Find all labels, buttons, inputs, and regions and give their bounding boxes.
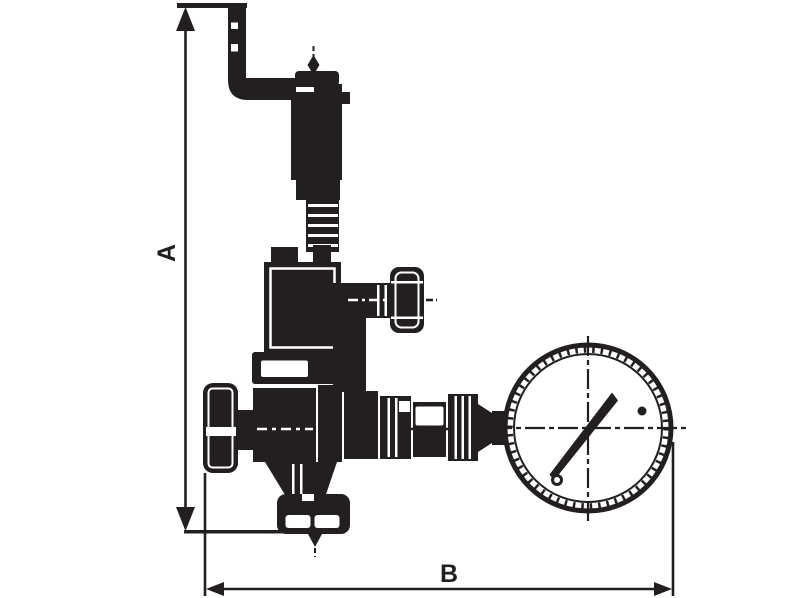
- sensing-pipe-elbow: [228, 3, 298, 100]
- outlet-fittings: [318, 385, 508, 462]
- flange-groove: [388, 398, 391, 457]
- t-handle-bar-line: [391, 281, 423, 284]
- adjusting-screw: [295, 46, 339, 86]
- spring-tube-upper: [291, 84, 342, 180]
- dimension-b-label: B: [440, 560, 458, 588]
- spring-tube: [291, 84, 350, 252]
- union-groove: [469, 396, 472, 459]
- spring-tube-mid: [296, 180, 340, 200]
- pipe-fitting-notch: [231, 23, 238, 30]
- union-window: [286, 515, 311, 528]
- pressure-gauge: [492, 336, 688, 521]
- union-window: [315, 515, 340, 528]
- bonnet-flange-window: [261, 361, 308, 378]
- flange-notch: [399, 401, 410, 412]
- thread-stripe: [308, 214, 338, 217]
- union-top-slot: [302, 494, 314, 501]
- dimension-a-arrow-up: [176, 7, 195, 31]
- inlet-stem: [238, 410, 255, 450]
- valve-dimension-drawing: A B: [0, 0, 800, 598]
- union-groove: [462, 396, 465, 459]
- drain-tip: [308, 534, 322, 547]
- spring-tube-ear: [341, 92, 350, 104]
- dimension-b-arrow-right: [654, 582, 672, 596]
- thread-stripe: [308, 234, 338, 237]
- spring-chamber: [252, 245, 341, 384]
- outlet-flange-1: [318, 385, 342, 462]
- pipe-fitting-notch: [231, 44, 238, 52]
- needle-counterweight: [553, 476, 562, 485]
- valve-body-block: [253, 388, 316, 462]
- outlet-cone: [478, 404, 492, 452]
- chamber-body: [264, 262, 341, 354]
- technical-drawing-canvas: A B: [0, 0, 800, 598]
- gauge-cock: [331, 267, 437, 392]
- adjusting-screw-cap: [295, 71, 339, 86]
- gauge-cock-down-leg: [333, 308, 366, 392]
- outlet-cylinder-1: [344, 391, 378, 459]
- gauge-stop-pin: [638, 407, 647, 416]
- chamber-top-step: [271, 247, 298, 264]
- cylinder-window: [416, 407, 444, 426]
- thread-stripe: [308, 224, 338, 227]
- t-handle-bar-line: [391, 317, 423, 320]
- dimension-a-arrow-down: [176, 507, 195, 531]
- dimension-b-arrow-left: [206, 582, 224, 596]
- thread-stripe: [308, 204, 338, 207]
- spring-tube-slot: [296, 87, 314, 92]
- bottom-union: [277, 494, 350, 557]
- union-groove: [455, 396, 458, 459]
- dimension-a-label: A: [153, 244, 181, 262]
- sensing-pipe: [228, 3, 298, 100]
- dimension-a-bottom-extension-line: [184, 530, 282, 534]
- inlet-handwheel: [203, 383, 238, 473]
- handwheel-divider-band: [206, 427, 236, 436]
- flange-groove: [395, 398, 398, 457]
